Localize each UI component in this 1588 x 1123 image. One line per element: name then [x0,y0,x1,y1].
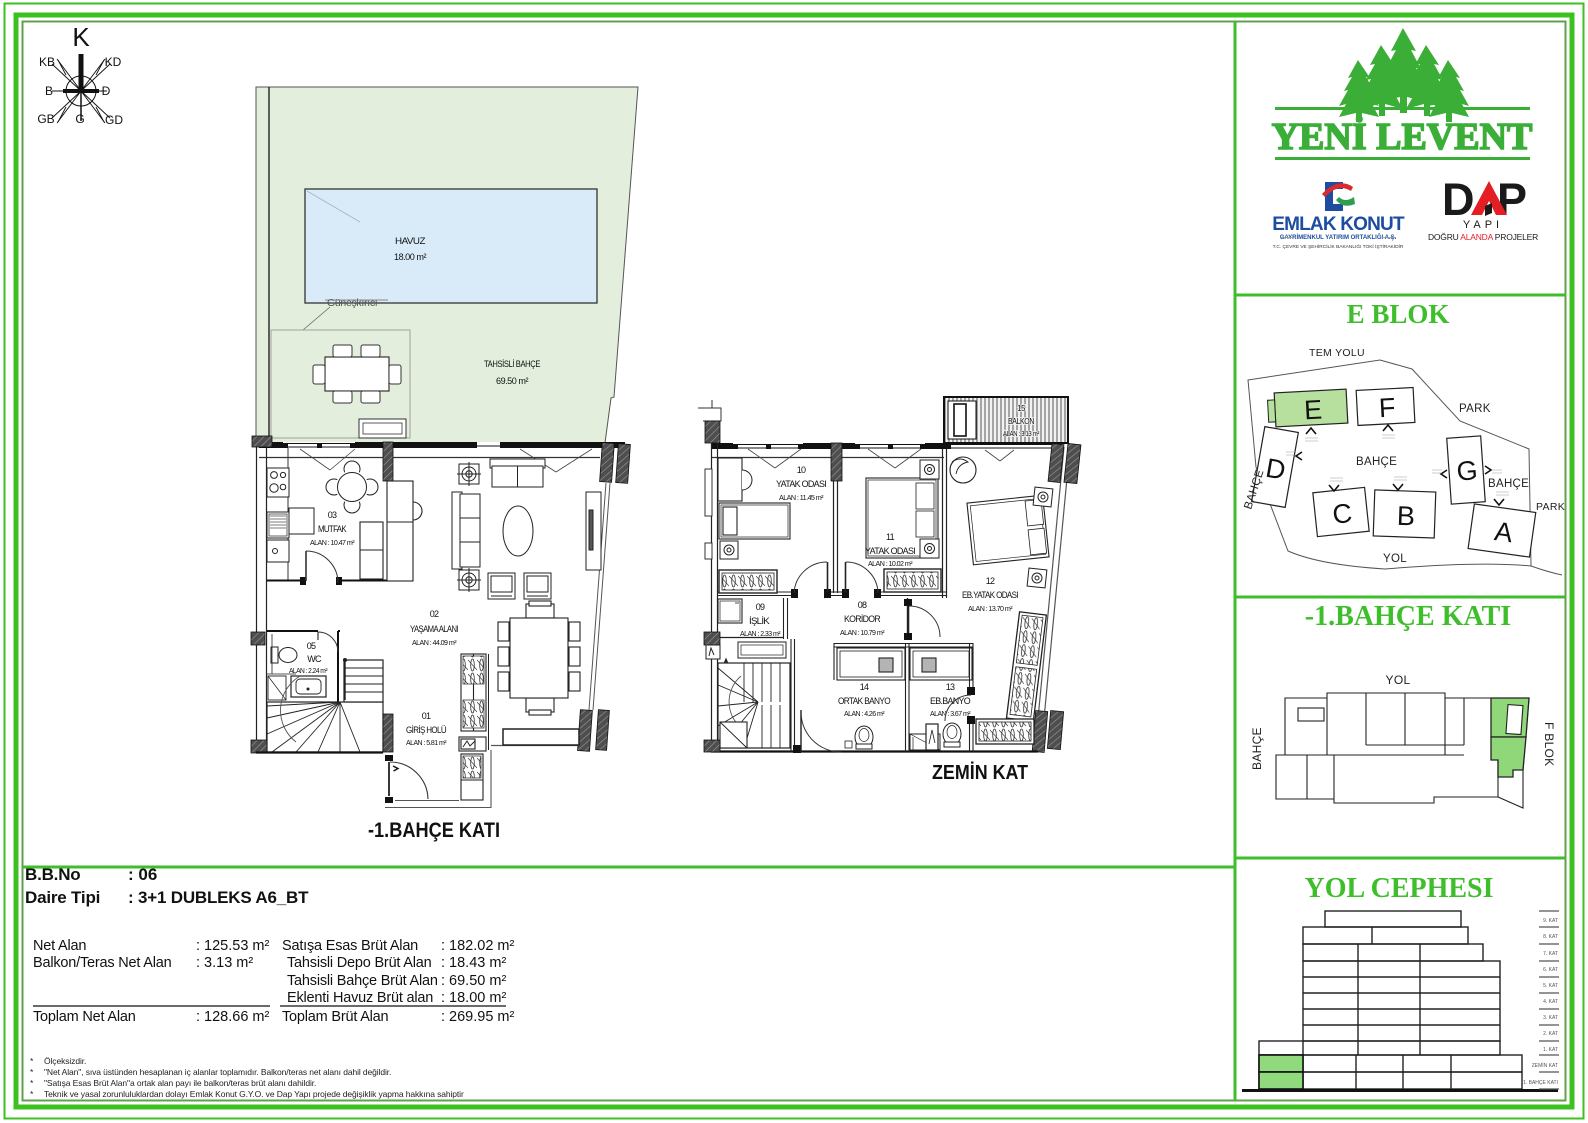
svg-text:F BLOK: F BLOK [1542,722,1556,766]
svg-text:BAHÇE: BAHÇE [1356,456,1397,468]
svg-text:T.C. ÇEVRE VE ŞEHİRCİLİK BAKAN: T.C. ÇEVRE VE ŞEHİRCİLİK BAKANLIĞI TOKİ … [1273,243,1404,250]
svg-text:YOL CEPHESI: YOL CEPHESI [1304,873,1493,904]
svg-text:D: D [1442,174,1473,225]
svg-text:12: 12 [986,576,995,586]
svg-text:ALAN : 3.67 m²: ALAN : 3.67 m² [930,709,971,718]
svg-text:"Satışa Esas Brüt Alan"a orta: "Satışa Esas Brüt Alan"a ortak alan payı… [44,1078,316,1088]
svg-text:B: B [45,84,53,98]
svg-text:KORİDOR: KORİDOR [844,614,881,624]
svg-text:MUTFAK: MUTFAK [318,524,347,534]
svg-text:C: C [1331,498,1354,530]
svg-text:D: D [102,84,111,98]
svg-text:GB: GB [37,112,54,126]
svg-text:B.B.No: B.B.No [25,865,80,884]
svg-text:YAPI: YAPI [1463,219,1503,231]
svg-text:13: 13 [946,682,955,692]
svg-text:: 128.66 m²: : 128.66 m² [196,1009,270,1025]
svg-text:6. KAT: 6. KAT [1543,967,1558,973]
svg-text:ALAN : 10.47 m²: ALAN : 10.47 m² [310,538,355,547]
svg-text:69.50 m²: 69.50 m² [496,376,528,387]
svg-text:ALAN : 2.24 m²: ALAN : 2.24 m² [289,666,328,675]
svg-text:G: G [75,112,84,126]
svg-text:YATAK ODASI: YATAK ODASI [865,546,915,556]
svg-text:1. KAT: 1. KAT [1543,1047,1558,1053]
svg-text:: 18.00 m²: : 18.00 m² [441,990,506,1006]
svg-text:DOĞRU ALANDA PROJELER: DOĞRU ALANDA PROJELER [1428,232,1538,242]
svg-text:8. KAT: 8. KAT [1543,934,1558,940]
svg-text:Tahsisli Bahçe Brüt Alan: Tahsisli Bahçe Brüt Alan [287,973,438,989]
svg-text:PARK: PARK [1536,501,1565,513]
svg-text:Güneşkırıcı: Güneşkırıcı [327,297,377,309]
svg-text:İŞLİK: İŞLİK [749,616,770,626]
svg-text:Tahsisli Depo Brüt Alan: Tahsisli Depo Brüt Alan [287,955,432,971]
svg-text:Net Alan: Net Alan [33,938,86,954]
svg-text:11: 11 [886,532,895,542]
svg-text:3. KAT: 3. KAT [1543,1015,1558,1021]
svg-text:YENİ LEVENT: YENİ LEVENT [1272,116,1533,158]
svg-text:EB.YATAK ODASI: EB.YATAK ODASI [962,590,1018,600]
svg-text:Balkon/Teras Net Alan: Balkon/Teras Net Alan [33,955,172,971]
svg-text:: 69.50 m²: : 69.50 m² [441,973,506,989]
svg-text:10: 10 [797,465,806,475]
svg-text:ALAN : 44.09 m²: ALAN : 44.09 m² [412,638,457,647]
svg-text:G: G [1456,455,1479,486]
svg-text:14: 14 [860,682,869,692]
svg-text:B: B [1396,501,1415,532]
svg-text:ORTAK BANYO: ORTAK BANYO [838,696,891,706]
svg-text:18.00 m²: 18.00 m² [394,252,426,263]
svg-text:2. KAT: 2. KAT [1543,1031,1558,1037]
svg-text:GAYRİMENKUL YATIRIM ORTAKLIĞI: GAYRİMENKUL YATIRIM ORTAKLIĞI A.Ş. [1280,233,1397,241]
svg-text:EMLAK KONUT: EMLAK KONUT [1272,214,1405,235]
svg-text:: 125.53 m²: : 125.53 m² [196,938,270,954]
svg-text:BAHÇE: BAHÇE [1488,478,1529,490]
svg-text:9. KAT: 9. KAT [1543,918,1558,924]
svg-text:: 269.95 m²: : 269.95 m² [441,1009,515,1025]
svg-text:01: 01 [422,711,431,721]
svg-text:Satışa Esas Brüt Alan: Satışa Esas Brüt Alan [282,938,418,954]
svg-text:: 18.43 m²: : 18.43 m² [441,955,506,971]
svg-text:GİRİŞ HOLÜ: GİRİŞ HOLÜ [406,725,446,735]
svg-text:: 3.13 m²: : 3.13 m² [196,955,253,971]
svg-text:YATAK ODASI: YATAK ODASI [776,479,826,489]
svg-text:7. KAT: 7. KAT [1543,951,1558,957]
svg-text:5. KAT: 5. KAT [1543,983,1558,989]
svg-text:PARK: PARK [1459,403,1491,415]
svg-text:TAHSİSLİ BAHÇE: TAHSİSLİ BAHÇE [484,359,540,370]
svg-text:Ölçeksizdir.: Ölçeksizdir. [44,1056,86,1066]
svg-text:ALAN : 4.26 m²: ALAN : 4.26 m² [844,709,885,718]
svg-text:Daire Tipi: Daire Tipi [25,888,100,907]
svg-text:: 3+1 DUBLEKS A6_BT: : 3+1 DUBLEKS A6_BT [128,888,309,907]
svg-text:ZEMİN KAT: ZEMİN KAT [1532,1062,1558,1069]
svg-text:WC: WC [307,654,322,664]
svg-text:BAHÇE: BAHÇE [1250,727,1264,770]
svg-text:4. KAT: 4. KAT [1543,999,1558,1005]
svg-text:Toplam Net Alan: Toplam Net Alan [33,1009,136,1025]
svg-text:ALAN : 10.02 m²: ALAN : 10.02 m² [868,559,913,568]
svg-text:15: 15 [1017,404,1026,413]
svg-text:Toplam Brüt Alan: Toplam Brüt Alan [282,1009,389,1025]
svg-text:KB: KB [39,55,55,69]
svg-text:"Net Alan", sıva üstünden hes: "Net Alan", sıva üstünden hesaplanan iç … [44,1067,391,1077]
svg-text:: 182.02 m²: : 182.02 m² [441,938,515,954]
svg-text:Teknik ve yasal zorunlulukla: Teknik ve yasal zorunluluklardan dolayı … [44,1089,464,1099]
svg-text:F: F [1378,392,1396,423]
svg-text:ALAN : 10.79 m²: ALAN : 10.79 m² [840,628,885,637]
svg-text:09: 09 [756,602,765,612]
svg-text:-1.BAHÇE KATI: -1.BAHÇE KATI [1305,601,1511,632]
svg-text:P: P [1497,174,1526,225]
svg-text:BALKON: BALKON [1008,417,1035,426]
svg-text:08: 08 [858,600,867,610]
svg-text:K: K [72,22,90,52]
svg-text:ALAN : 3.13 m²: ALAN : 3.13 m² [1003,429,1040,438]
svg-text:03: 03 [328,510,337,520]
svg-text:ZEMİN KAT: ZEMİN KAT [932,761,1028,784]
svg-text:-1. BAHÇE KATI: -1. BAHÇE KATI [1521,1080,1558,1086]
svg-text:ALAN : 2.33 m²: ALAN : 2.33 m² [740,629,781,638]
svg-text:YOL: YOL [1383,553,1407,565]
svg-text:: 06: : 06 [128,865,157,884]
svg-text:GD: GD [105,113,123,127]
svg-text:YAŞAMA ALANI: YAŞAMA ALANI [410,624,458,634]
svg-text:-1.BAHÇE KATI: -1.BAHÇE KATI [368,819,500,842]
svg-text:YOL: YOL [1386,673,1411,687]
svg-text:02: 02 [430,609,439,619]
svg-text:HAVUZ: HAVUZ [395,236,426,247]
svg-text:E: E [1303,394,1323,425]
svg-text:ALAN : 11.45 m²: ALAN : 11.45 m² [779,493,824,502]
svg-text:Eklenti Havuz Brüt alan: Eklenti Havuz Brüt alan [287,990,433,1006]
svg-text:E BLOK: E BLOK [1347,299,1450,329]
svg-text:ALAN : 5.81 m²: ALAN : 5.81 m² [406,738,447,747]
svg-text:05: 05 [307,641,316,651]
svg-text:ALAN : 13.70 m²: ALAN : 13.70 m² [968,604,1013,613]
svg-text:KD: KD [105,55,122,69]
svg-text:TEM YOLU: TEM YOLU [1309,347,1365,359]
